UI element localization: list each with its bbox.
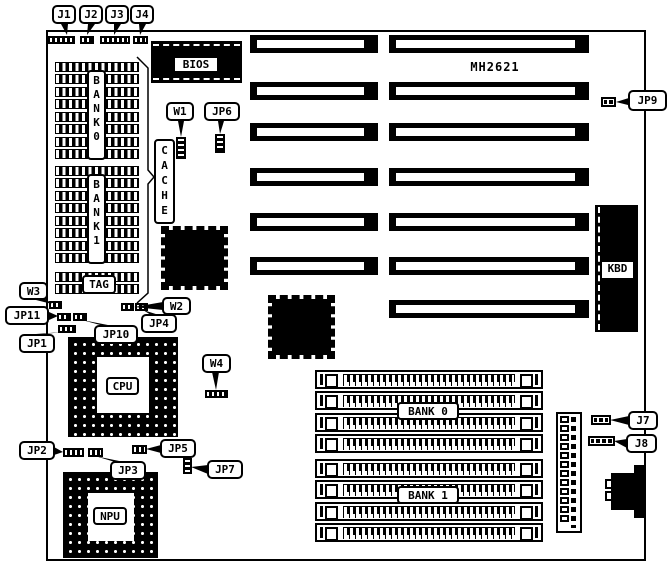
jp6-pointer	[218, 121, 224, 134]
w4-pointer	[212, 372, 219, 390]
callout-jp10: JP10	[94, 325, 138, 344]
callout-w1: W1	[166, 102, 194, 121]
callout-jp3: JP3	[110, 461, 146, 480]
j3-pointer	[114, 24, 121, 35]
bios-label: BIOS	[173, 56, 219, 73]
cache-brace	[137, 57, 154, 303]
callout-w2: W2	[162, 297, 191, 315]
j4-pointer	[139, 24, 146, 35]
sram-bank1-label: BANK1	[87, 174, 106, 264]
simm-bank1-label: BANK 1	[397, 486, 459, 504]
j7-pointer	[610, 416, 629, 425]
callout-jp6: JP6	[204, 102, 240, 121]
callout-j3: J3	[105, 5, 129, 24]
w1-pointer	[178, 121, 184, 137]
cache-label: CACHE	[154, 139, 175, 224]
callout-jp5: JP5	[160, 439, 196, 458]
motherboard-diagram: MH2621 BIOS BANK0 BANK1 TAG CACHE	[0, 0, 667, 569]
jp5-pointer	[146, 445, 161, 453]
callout-jp4: JP4	[141, 314, 177, 333]
callout-jp2: JP2	[19, 441, 55, 460]
callout-j7: J7	[628, 411, 658, 430]
callout-jp7: JP7	[207, 460, 243, 479]
npu-label: NPU	[93, 507, 127, 525]
w2-pointer	[134, 302, 163, 310]
j1-pointer	[61, 24, 68, 35]
simm-bank0-label: BANK 0	[397, 402, 459, 420]
sram-bank0-label: BANK0	[87, 70, 106, 160]
jp7-pointer	[191, 465, 208, 474]
callout-jp1: JP1	[19, 334, 55, 353]
callout-j4: J4	[130, 5, 154, 24]
callout-j1: J1	[52, 5, 76, 24]
callout-jp9: JP9	[628, 90, 667, 111]
tag-label: TAG	[82, 275, 116, 294]
callout-w4: W4	[202, 354, 231, 373]
jp11-pointer	[49, 312, 58, 320]
j2-pointer	[87, 24, 95, 35]
callout-j2: J2	[79, 5, 103, 24]
callout-j8: J8	[626, 434, 657, 453]
cpu-label: CPU	[106, 377, 139, 395]
callout-w3: W3	[19, 282, 48, 300]
callout-jp11: JP11	[5, 306, 49, 325]
jp2-pointer	[54, 447, 63, 455]
